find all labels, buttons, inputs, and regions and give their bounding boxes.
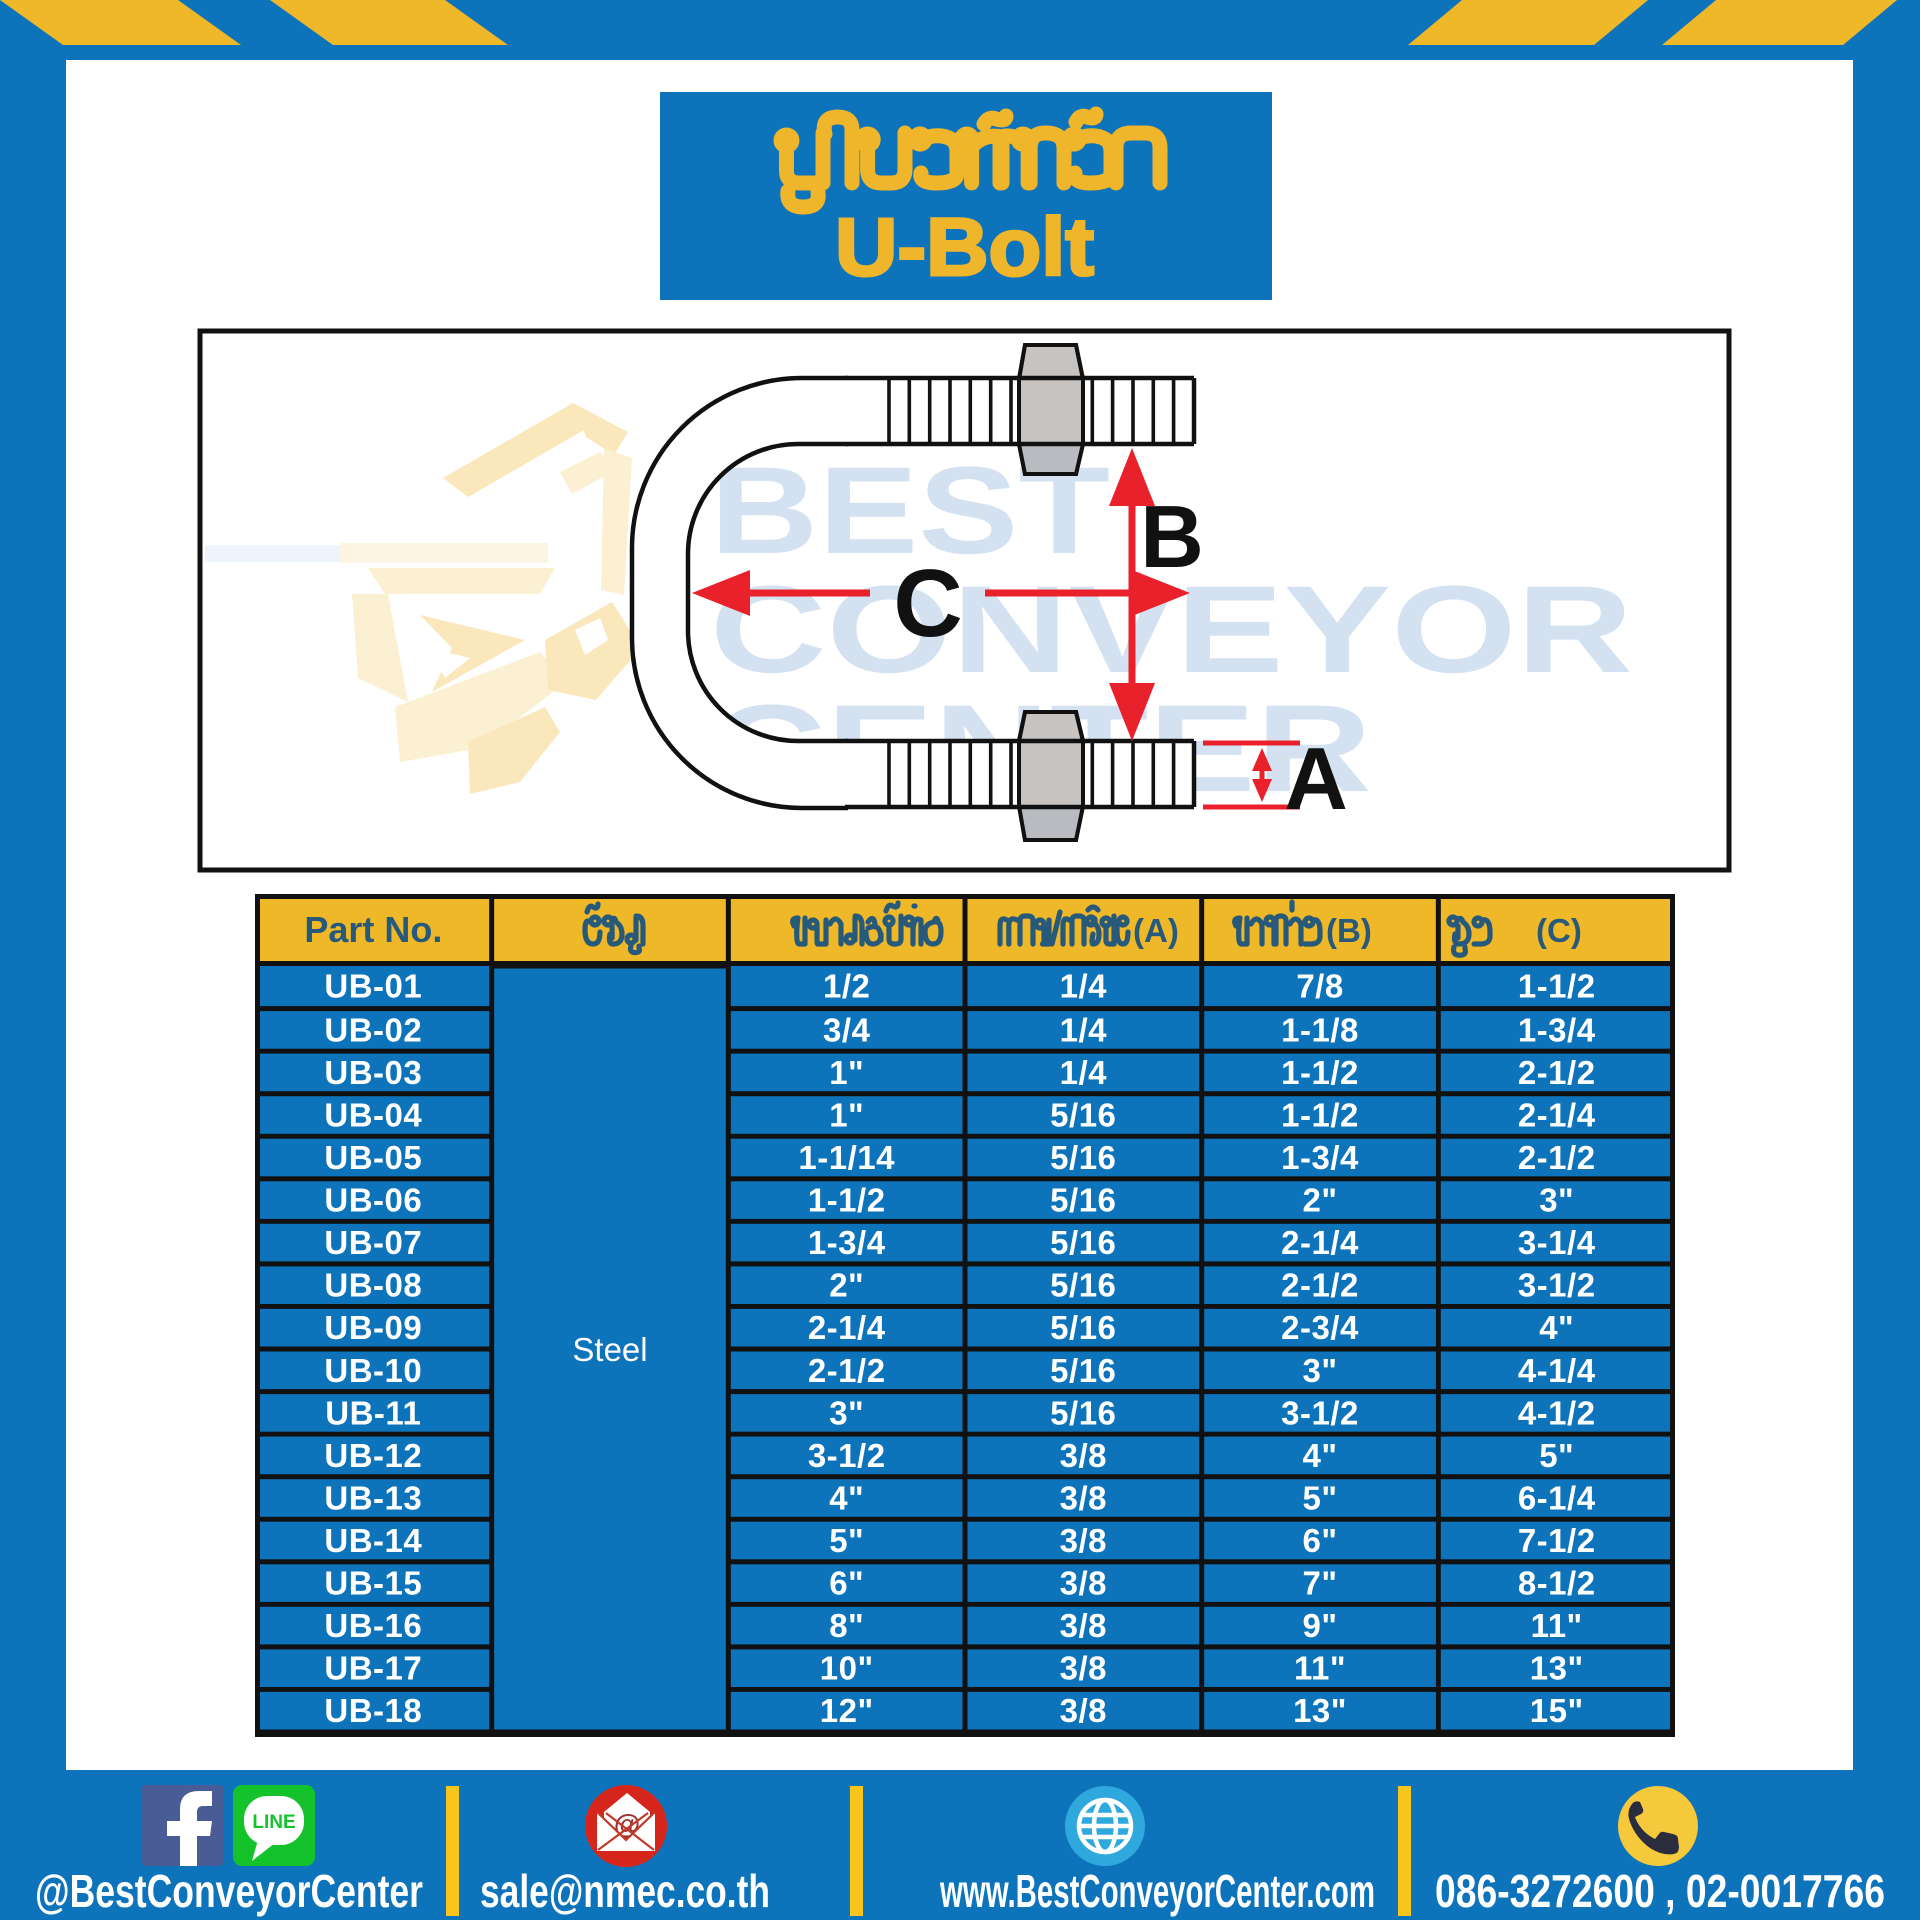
svg-text:4": 4" (829, 1479, 864, 1516)
svg-text:11": 11" (1294, 1650, 1346, 1687)
svg-text:3/8: 3/8 (1060, 1522, 1107, 1559)
svg-text:9": 9" (1303, 1607, 1338, 1644)
svg-text:UB-15: UB-15 (324, 1565, 422, 1602)
svg-text:U-Bolt: U-Bolt (835, 202, 1094, 293)
svg-text:3-1/2: 3-1/2 (1281, 1394, 1359, 1431)
svg-text:3/8: 3/8 (1060, 1437, 1107, 1474)
svg-text:1": 1" (829, 1096, 864, 1133)
svg-text:3/8: 3/8 (1060, 1607, 1107, 1644)
svg-text:5/16: 5/16 (1050, 1267, 1116, 1304)
svg-text:1/2: 1/2 (823, 968, 870, 1005)
svg-text:11": 11" (1531, 1607, 1583, 1644)
svg-text:3": 3" (1303, 1352, 1338, 1389)
svg-text:1-3/4: 1-3/4 (808, 1224, 886, 1261)
svg-text:UB-10: UB-10 (324, 1352, 422, 1389)
svg-text:1-1/2: 1-1/2 (1518, 968, 1596, 1005)
svg-text:3-1/2: 3-1/2 (808, 1437, 886, 1474)
svg-text:5/16: 5/16 (1050, 1182, 1116, 1219)
svg-text:2-1/4: 2-1/4 (1518, 1096, 1596, 1133)
svg-text:2-1/2: 2-1/2 (1518, 1139, 1596, 1176)
svg-text:UB-14: UB-14 (324, 1522, 422, 1559)
svg-text:5/16: 5/16 (1050, 1096, 1116, 1133)
svg-text:(A): (A) (1133, 912, 1179, 949)
svg-text:2-1/2: 2-1/2 (808, 1352, 886, 1389)
svg-text:10": 10" (820, 1650, 874, 1687)
svg-text:3/8: 3/8 (1060, 1565, 1107, 1602)
svg-text:(C): (C) (1536, 912, 1582, 949)
svg-text:3/8: 3/8 (1060, 1479, 1107, 1516)
svg-text:UB-08: UB-08 (324, 1267, 422, 1304)
svg-text:2-1/2: 2-1/2 (1281, 1267, 1359, 1304)
svg-text:3-1/4: 3-1/4 (1518, 1224, 1596, 1261)
svg-text:UB-11: UB-11 (325, 1394, 421, 1431)
svg-text:2": 2" (1303, 1182, 1338, 1219)
svg-text:UB-18: UB-18 (324, 1692, 422, 1729)
svg-text:13": 13" (1530, 1650, 1584, 1687)
svg-text:1-1/14: 1-1/14 (798, 1139, 895, 1176)
svg-text:7/8: 7/8 (1296, 968, 1343, 1005)
svg-text:C: C (893, 550, 962, 657)
svg-text:UB-02: UB-02 (324, 1011, 422, 1048)
svg-text:5/16: 5/16 (1050, 1224, 1116, 1261)
svg-text:@BestConveyorCenter: @BestConveyorCenter (35, 1865, 423, 1917)
svg-text:UB-07: UB-07 (324, 1224, 422, 1261)
svg-text:(B): (B) (1326, 912, 1372, 949)
svg-text:6": 6" (829, 1565, 864, 1602)
svg-text:6": 6" (1303, 1522, 1338, 1559)
svg-text:3/8: 3/8 (1060, 1650, 1107, 1687)
svg-text:UB-12: UB-12 (324, 1437, 422, 1474)
svg-text:6-1/4: 6-1/4 (1518, 1479, 1596, 1516)
svg-text:086-3272600 , 02-0017766: 086-3272600 , 02-0017766 (1435, 1865, 1885, 1917)
svg-text:3/4: 3/4 (823, 1011, 871, 1048)
svg-text:8-1/2: 8-1/2 (1518, 1565, 1596, 1602)
svg-text:7": 7" (1303, 1565, 1338, 1602)
svg-text:5/16: 5/16 (1050, 1352, 1116, 1389)
svg-text:UB-03: UB-03 (324, 1054, 422, 1091)
svg-text:B: B (1140, 487, 1204, 586)
svg-text:UB-05: UB-05 (324, 1139, 422, 1176)
svg-text:3": 3" (1539, 1182, 1574, 1219)
svg-text:2-1/4: 2-1/4 (1281, 1224, 1359, 1261)
svg-text:8": 8" (829, 1607, 864, 1644)
svg-text:1/4: 1/4 (1060, 1011, 1108, 1048)
svg-text:1": 1" (829, 1054, 864, 1091)
svg-text:5/16: 5/16 (1050, 1139, 1116, 1176)
svg-text:4": 4" (1539, 1309, 1574, 1346)
svg-text:sale@nmec.co.th: sale@nmec.co.th (480, 1865, 770, 1917)
svg-text:5": 5" (1539, 1437, 1574, 1474)
svg-text:1-3/4: 1-3/4 (1518, 1011, 1596, 1048)
svg-text:2": 2" (829, 1267, 864, 1304)
svg-text:3-1/2: 3-1/2 (1518, 1267, 1596, 1304)
svg-text:1-1/2: 1-1/2 (1281, 1096, 1359, 1133)
svg-text:UB-09: UB-09 (324, 1309, 422, 1346)
svg-text:1/4: 1/4 (1060, 1054, 1108, 1091)
svg-text:5/16: 5/16 (1050, 1394, 1116, 1431)
svg-text:www.BestConveyorCenter.com: www.BestConveyorCenter.com (939, 1865, 1375, 1917)
svg-text:5": 5" (1303, 1479, 1338, 1516)
svg-text:3/8: 3/8 (1060, 1692, 1107, 1729)
svg-text:15": 15" (1530, 1692, 1584, 1729)
svg-text:UB-13: UB-13 (324, 1479, 422, 1516)
svg-text:4-1/2: 4-1/2 (1518, 1394, 1596, 1431)
svg-text:UB-16: UB-16 (324, 1607, 422, 1644)
svg-text:7-1/2: 7-1/2 (1518, 1522, 1596, 1559)
svg-text:UB-04: UB-04 (324, 1096, 422, 1133)
svg-text:1-1/2: 1-1/2 (808, 1182, 886, 1219)
svg-text:1-1/2: 1-1/2 (1281, 1054, 1359, 1091)
svg-text:1/4: 1/4 (1060, 968, 1108, 1005)
svg-text:UB-17: UB-17 (324, 1650, 422, 1687)
svg-text:2-3/4: 2-3/4 (1281, 1309, 1359, 1346)
svg-text:1-3/4: 1-3/4 (1281, 1139, 1359, 1176)
svg-text:4": 4" (1303, 1437, 1338, 1474)
svg-text:UB-01: UB-01 (324, 968, 422, 1005)
svg-text:5": 5" (829, 1522, 864, 1559)
svg-text:3": 3" (829, 1394, 864, 1431)
svg-text:2-1/2: 2-1/2 (1518, 1054, 1596, 1091)
svg-text:Steel: Steel (572, 1331, 647, 1368)
svg-text:5/16: 5/16 (1050, 1309, 1116, 1346)
svg-text:1-1/8: 1-1/8 (1281, 1011, 1359, 1048)
svg-text:LINE: LINE (252, 1812, 295, 1833)
svg-text:Part No.: Part No. (304, 909, 442, 950)
svg-text:2-1/4: 2-1/4 (808, 1309, 886, 1346)
svg-text:4-1/4: 4-1/4 (1518, 1352, 1596, 1389)
svg-text:12": 12" (820, 1692, 874, 1729)
svg-text:A: A (1284, 729, 1348, 828)
svg-text:13": 13" (1293, 1692, 1347, 1729)
svg-text:UB-06: UB-06 (324, 1182, 422, 1219)
